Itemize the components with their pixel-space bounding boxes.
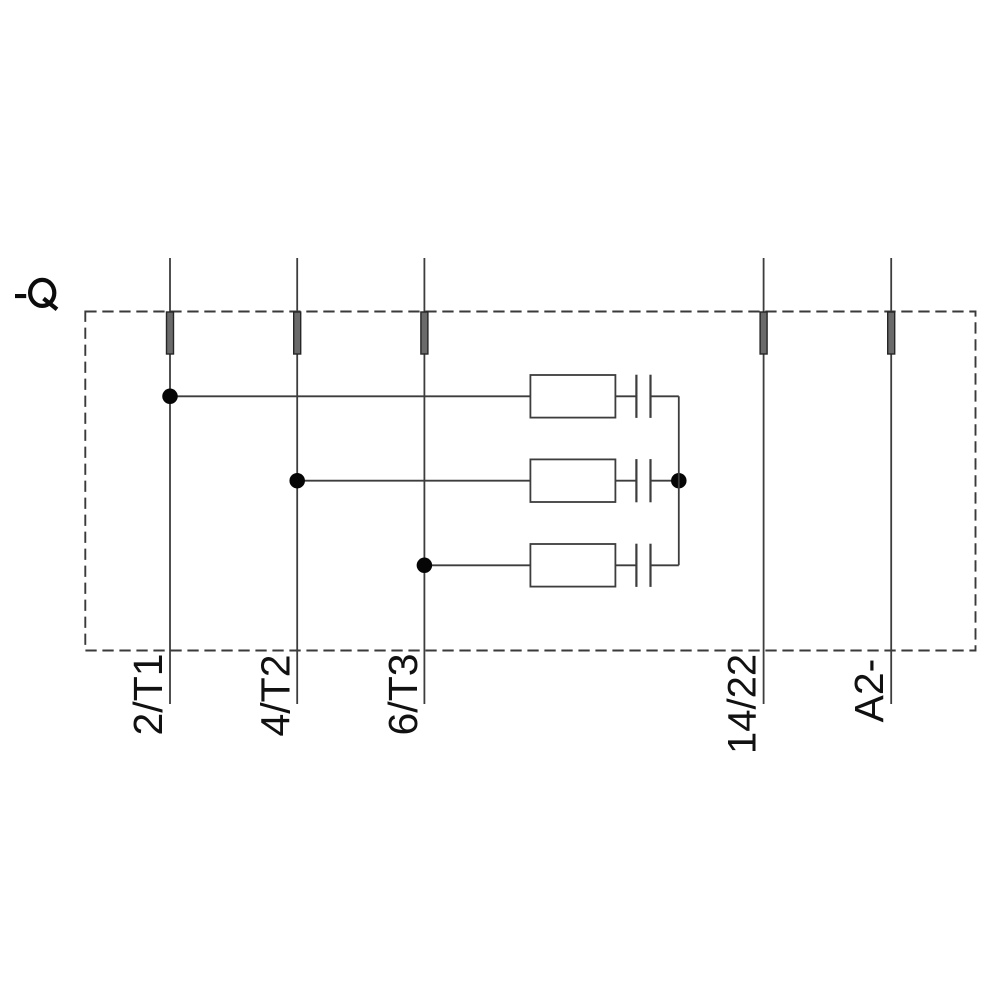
- svg-text:2/T1: 2/T1: [125, 653, 171, 735]
- svg-text:4/T2: 4/T2: [252, 654, 298, 736]
- svg-text:14/22: 14/22: [721, 654, 765, 754]
- svg-text:6/T3: 6/T3: [380, 653, 426, 735]
- svg-text:A2-: A2-: [846, 659, 892, 723]
